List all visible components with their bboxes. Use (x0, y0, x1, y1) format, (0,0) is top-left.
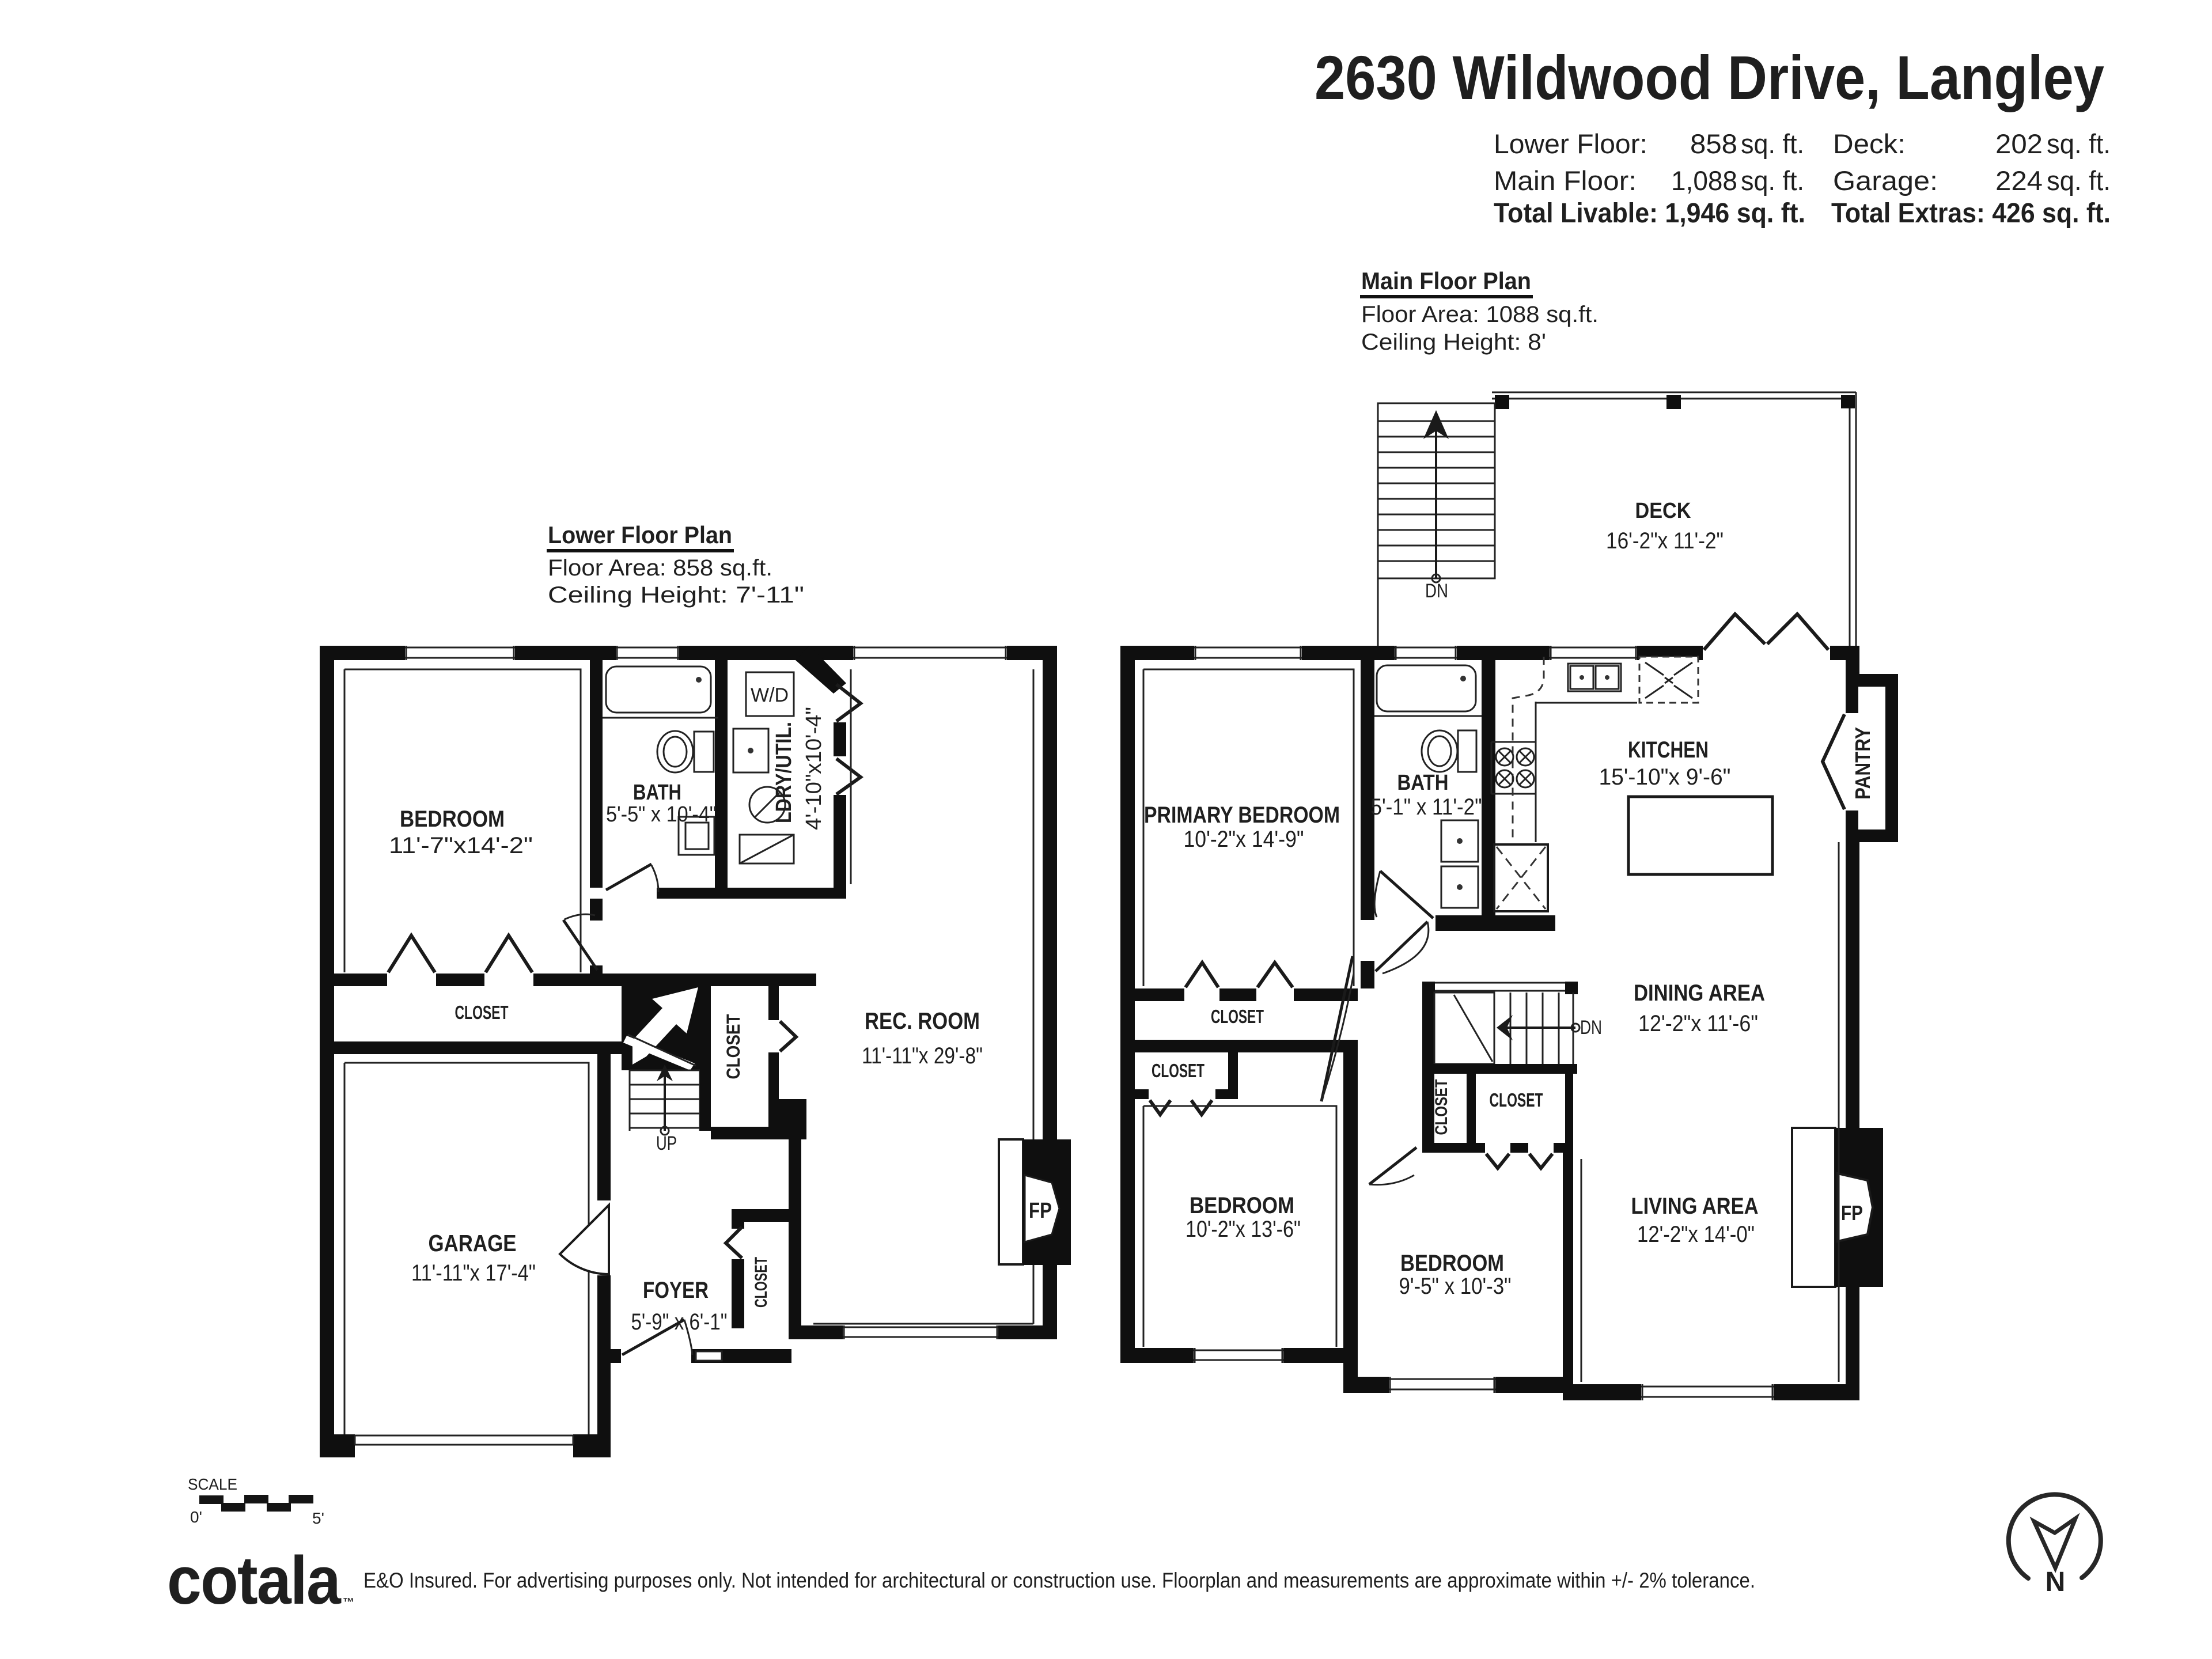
svg-text:9'-5" x 10'-3": 9'-5" x 10'-3" (1399, 1274, 1512, 1299)
svg-text:CLOSET: CLOSET (723, 1014, 744, 1079)
svg-text:REC. ROOM: REC. ROOM (865, 1007, 980, 1034)
svg-text:Lower Floor:: Lower Floor: (1494, 128, 1647, 159)
svg-text:11'-11"x 17'-4": 11'-11"x 17'-4" (411, 1260, 536, 1286)
svg-text:W/D: W/D (751, 684, 789, 706)
svg-text:Floor Area: 1088 sq.ft.: Floor Area: 1088 sq.ft. (1361, 302, 1599, 327)
svg-text:4'-10"x10'-4": 4'-10"x10'-4" (802, 707, 826, 830)
svg-text:BEDROOM: BEDROOM (400, 806, 505, 832)
svg-text:GARAGE: GARAGE (429, 1230, 517, 1256)
svg-text:Garage:: Garage: (1833, 165, 1938, 196)
svg-text:Total Extras: 426 sq. ft.: Total Extras: 426 sq. ft. (1831, 198, 2111, 229)
svg-text:Floor Area: 858 sq.ft.: Floor Area: 858 sq.ft. (548, 555, 772, 581)
svg-text:5': 5' (312, 1509, 324, 1527)
svg-text:2630 Wildwood Drive, Langley: 2630 Wildwood Drive, Langley (1315, 43, 2104, 112)
svg-text:sq. ft.: sq. ft. (1741, 128, 1804, 159)
svg-text:224: 224 (1995, 165, 2043, 196)
svg-text:E&O Insured. For advertising p: E&O Insured. For advertising purposes on… (363, 1569, 1755, 1592)
svg-text:CLOSET: CLOSET (1490, 1089, 1543, 1111)
svg-text:BEDROOM: BEDROOM (1190, 1193, 1294, 1218)
svg-text:N: N (2046, 1567, 2066, 1597)
svg-text:FOYER: FOYER (643, 1278, 709, 1303)
svg-text:Lower Floor Plan: Lower Floor Plan (548, 521, 732, 548)
svg-text:BATH: BATH (633, 781, 681, 805)
svg-text:Ceiling Height: 7'-11": Ceiling Height: 7'-11" (548, 582, 804, 608)
svg-text:sq. ft.: sq. ft. (2047, 128, 2111, 159)
svg-text:Ceiling Height: 8': Ceiling Height: 8' (1361, 329, 1546, 355)
svg-text:5'-5" x 10'-4": 5'-5" x 10'-4" (606, 802, 717, 827)
svg-text:BEDROOM: BEDROOM (1400, 1251, 1504, 1276)
svg-text:Deck:: Deck: (1833, 128, 1906, 159)
svg-text:Main Floor:: Main Floor: (1494, 165, 1637, 196)
svg-text:Main Floor Plan: Main Floor Plan (1361, 267, 1531, 294)
svg-text:5'-1" x 11'-2": 5'-1" x 11'-2" (1371, 794, 1482, 820)
svg-text:™: ™ (343, 1596, 354, 1609)
svg-text:CLOSET: CLOSET (752, 1257, 771, 1308)
svg-text:cotala: cotala (167, 1543, 342, 1619)
svg-text:0': 0' (190, 1508, 202, 1526)
svg-text:LIVING AREA: LIVING AREA (1631, 1194, 1759, 1219)
svg-text:LDRY/UTIL.: LDRY/UTIL. (772, 722, 796, 823)
svg-text:FP: FP (1841, 1201, 1863, 1225)
svg-text:11'-11"x 29'-8": 11'-11"x 29'-8" (862, 1043, 983, 1069)
svg-text:sq. ft.: sq. ft. (2047, 165, 2111, 196)
svg-text:Total Livable: 1,946 sq. ft.: Total Livable: 1,946 sq. ft. (1494, 198, 1805, 229)
svg-text:SCALE: SCALE (188, 1475, 237, 1493)
svg-text:11'-7"x14'-2": 11'-7"x14'-2" (389, 833, 533, 858)
svg-text:PRIMARY BEDROOM: PRIMARY BEDROOM (1144, 802, 1340, 828)
svg-text:sq. ft.: sq. ft. (1741, 165, 1804, 196)
svg-text:202: 202 (1995, 128, 2043, 159)
svg-text:10'-2"x 13'-6": 10'-2"x 13'-6" (1185, 1217, 1301, 1242)
svg-text:PANTRY: PANTRY (1851, 727, 1874, 800)
svg-text:CLOSET: CLOSET (455, 1002, 509, 1023)
svg-text:KITCHEN: KITCHEN (1628, 737, 1709, 763)
svg-text:CLOSET: CLOSET (1152, 1060, 1205, 1081)
svg-text:CLOSET: CLOSET (1211, 1006, 1264, 1027)
svg-text:UP: UP (656, 1132, 677, 1154)
svg-text:DECK: DECK (1635, 499, 1691, 523)
svg-text:12'-2"x 14'-0": 12'-2"x 14'-0" (1637, 1222, 1755, 1247)
svg-text:1,088: 1,088 (1671, 165, 1737, 196)
svg-text:15'-10"x 9'-6": 15'-10"x 9'-6" (1599, 764, 1731, 790)
svg-text:16'-2"x 11'-2": 16'-2"x 11'-2" (1606, 528, 1724, 554)
svg-text:DINING AREA: DINING AREA (1634, 980, 1765, 1006)
svg-text:FP: FP (1029, 1199, 1052, 1223)
svg-text:858: 858 (1690, 128, 1737, 159)
svg-text:CLOSET: CLOSET (1432, 1080, 1451, 1135)
svg-text:DN: DN (1580, 1017, 1602, 1039)
svg-text:DN: DN (1425, 580, 1448, 602)
svg-text:12'-2"x 11'-6": 12'-2"x 11'-6" (1638, 1011, 1758, 1036)
svg-text:BATH: BATH (1397, 771, 1449, 795)
svg-text:10'-2"x 14'-9": 10'-2"x 14'-9" (1184, 827, 1304, 852)
